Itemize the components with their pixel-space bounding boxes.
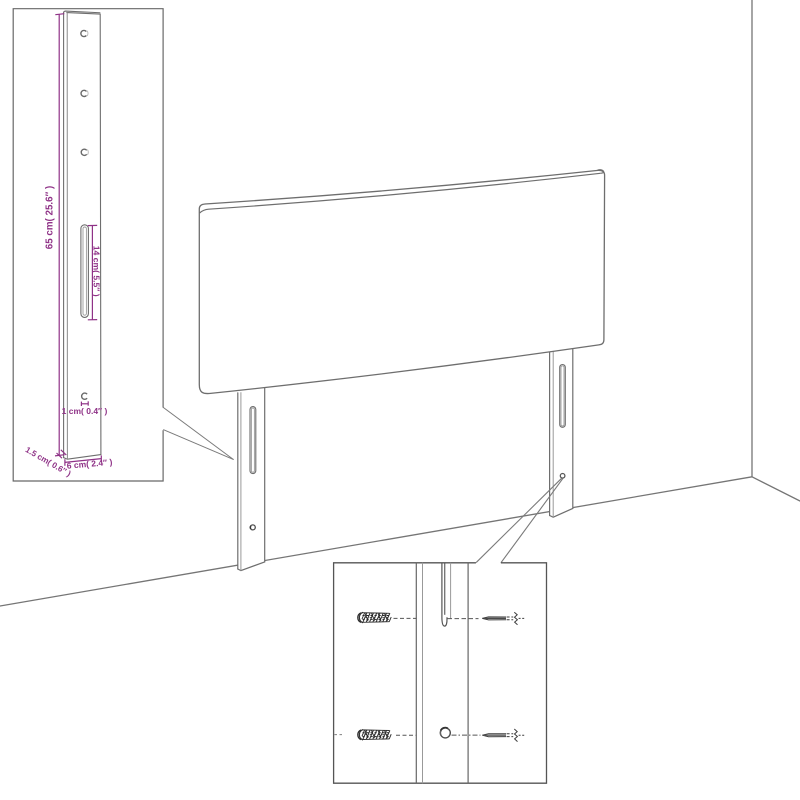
svg-text:14 cm( 5.5″ ): 14 cm( 5.5″ )	[91, 246, 101, 297]
svg-text:65 cm( 25.6″ ): 65 cm( 25.6″ )	[45, 186, 56, 250]
svg-text:1 cm( 0.4″ ): 1 cm( 0.4″ )	[62, 406, 108, 416]
